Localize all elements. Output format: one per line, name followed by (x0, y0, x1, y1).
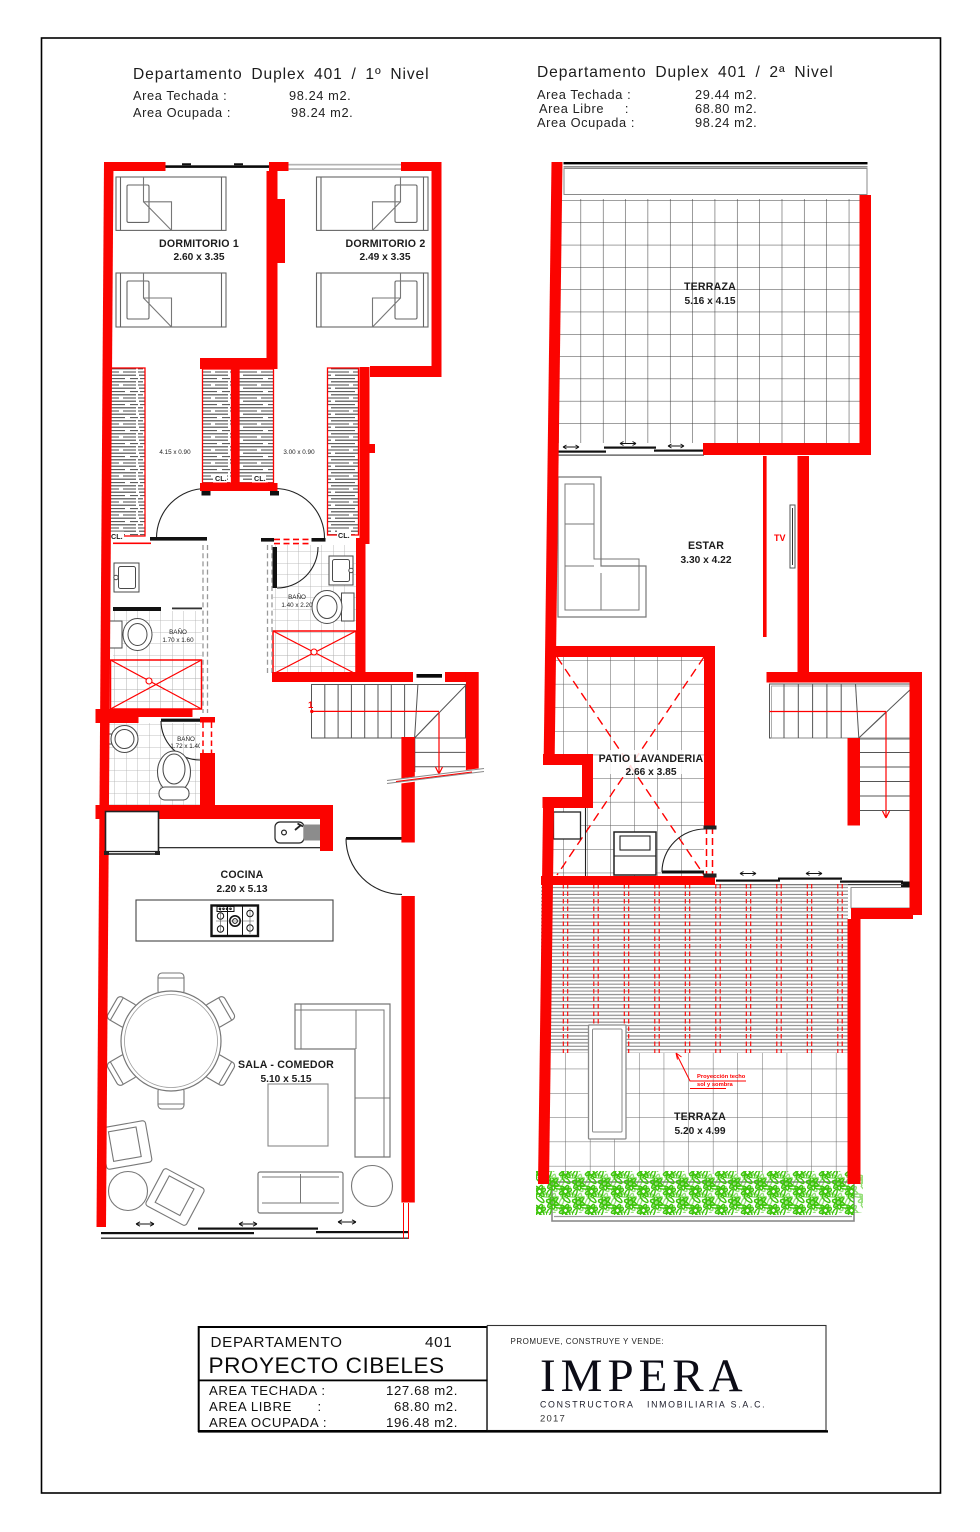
svg-text:127.68 m2.: 127.68 m2. (386, 1383, 458, 1398)
svg-text:Area Techada :: Area Techada : (537, 87, 631, 102)
svg-text:TERRAZA: TERRAZA (674, 1111, 726, 1123)
svg-text:29.44 m2.: 29.44 m2. (695, 87, 757, 102)
svg-text:2.49 x 3.35: 2.49 x 3.35 (360, 252, 411, 263)
svg-text:4.15 x 0.90: 4.15 x 0.90 (159, 449, 191, 456)
svg-text:401: 401 (425, 1334, 452, 1351)
svg-text:Proyección techo: Proyección techo (697, 1074, 746, 1080)
svg-text:AREA OCUPADA :: AREA OCUPADA : (209, 1415, 327, 1430)
svg-text:AREA TECHADA :: AREA TECHADA : (209, 1383, 326, 1398)
svg-text:68.80 m2.: 68.80 m2. (394, 1399, 458, 1414)
svg-text:1.40 x 2.20: 1.40 x 2.20 (281, 602, 313, 609)
svg-text:5.20 x 4.99: 5.20 x 4.99 (675, 1126, 726, 1137)
svg-text:DEPARTAMENTO: DEPARTAMENTO (211, 1334, 343, 1351)
svg-text:196.48 m2.: 196.48 m2. (386, 1415, 458, 1430)
svg-text:AREA LIBRE :: AREA LIBRE : (209, 1399, 322, 1414)
svg-text:CL.: CL. (215, 474, 227, 483)
svg-text:IMPERA: IMPERA (540, 1350, 748, 1402)
svg-text:98.24 m2.: 98.24 m2. (289, 88, 351, 103)
svg-text:Departamento Duplex 401 /: Departamento Duplex 401 / 2ª Nivel (537, 64, 834, 81)
svg-text:BAÑO: BAÑO (169, 627, 187, 636)
svg-text:Area Ocupada :: Area Ocupada : (133, 105, 231, 120)
svg-text:2.20 x 5.13: 2.20 x 5.13 (217, 884, 268, 895)
svg-text:PATIO LAVANDERIA: PATIO LAVANDERIA (599, 753, 704, 765)
svg-text:CONSTRUCTORA INMOBILIARIA S.: CONSTRUCTORA INMOBILIARIA S.A.C. (540, 1400, 766, 1410)
svg-text:CL.: CL. (254, 474, 266, 483)
svg-text:DORMITORIO 1: DORMITORIO 1 (159, 238, 239, 250)
svg-text:Departamento Duplex 401 /: Departamento Duplex 401 / 1º Nivel (133, 66, 430, 83)
svg-text:Area Libre :: Area Libre : (539, 101, 629, 116)
svg-text:98.24 m2.: 98.24 m2. (695, 115, 757, 130)
svg-text:DORMITORIO 2: DORMITORIO 2 (346, 238, 426, 250)
svg-text:CL.: CL. (338, 531, 350, 540)
svg-text:Area Techada :: Area Techada : (133, 88, 227, 103)
svg-text:3.00 x 0.90: 3.00 x 0.90 (283, 449, 315, 456)
svg-text:Area Ocupada :: Area Ocupada : (537, 115, 635, 130)
svg-text:3.30 x 4.22: 3.30 x 4.22 (681, 555, 732, 566)
svg-text:1.72 x 1.40: 1.72 x 1.40 (170, 743, 202, 750)
svg-text:COCINA: COCINA (221, 869, 264, 881)
svg-text:BAÑO: BAÑO (177, 734, 195, 743)
svg-text:TV: TV (774, 533, 786, 543)
svg-text:SALA - COMEDOR: SALA - COMEDOR (238, 1059, 334, 1071)
svg-text:2.60 x 3.35: 2.60 x 3.35 (174, 252, 225, 263)
svg-text:BAÑO: BAÑO (288, 592, 306, 601)
svg-text:5.10 x 5.15: 5.10 x 5.15 (261, 1074, 312, 1085)
svg-text:TERRAZA: TERRAZA (684, 281, 736, 293)
svg-text:ESTAR: ESTAR (688, 540, 724, 552)
svg-text:98.24 m2.: 98.24 m2. (291, 105, 353, 120)
svg-text:PROMUEVE, CONSTRUYE Y VENDE:: PROMUEVE, CONSTRUYE Y VENDE: (511, 1337, 665, 1346)
svg-text:68.80 m2.: 68.80 m2. (695, 101, 757, 116)
svg-text:PROYECTO CIBELES: PROYECTO CIBELES (209, 1353, 445, 1378)
svg-text:1: 1 (308, 700, 314, 711)
svg-text:2017: 2017 (540, 1414, 566, 1425)
svg-text:sol y sombra: sol y sombra (697, 1082, 734, 1088)
svg-text:2.66 x 3.85: 2.66 x 3.85 (626, 767, 677, 778)
svg-text:CL.: CL. (111, 532, 123, 541)
svg-text:1.70 x 1.60: 1.70 x 1.60 (162, 637, 194, 644)
svg-text:5.16 x 4.15: 5.16 x 4.15 (685, 296, 736, 307)
